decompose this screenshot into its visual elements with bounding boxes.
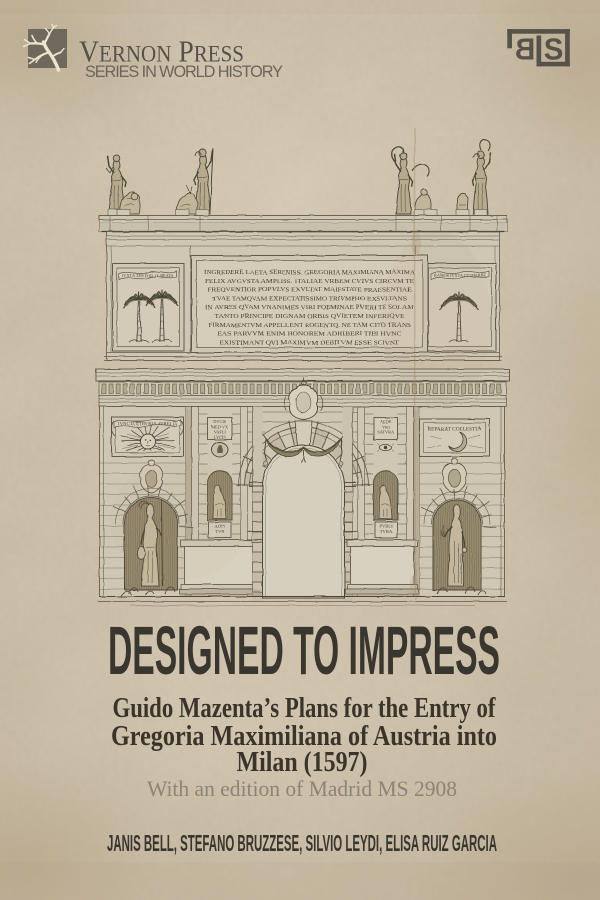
svg-text:IVNCTA ETRVRIA AVRELIA: IVNCTA ETRVRIA AVRELIA bbox=[118, 421, 179, 426]
svg-text:JANIS BELL, STEFANO BRUZZESE,: JANIS BELL, STEFANO BRUZZESE, SILVIO LEY… bbox=[107, 830, 497, 856]
svg-text:FREQVENTIOR POPVLVS EXVLTAT MA: FREQVENTIOR POPVLVS EXVLTAT MAIESTATE PR… bbox=[208, 287, 412, 294]
svg-text:With an edition of Madrid MS 2: With an edition of Madrid MS 2908 bbox=[147, 776, 457, 801]
svg-text:TVRA: TVRA bbox=[380, 529, 393, 534]
svg-text:EAS PARVVM ENIM HONOREM ADHIBE: EAS PARVVM ENIM HONOREM ADHIBERI TIBI HV… bbox=[218, 331, 403, 338]
svg-text:INGREDERE LAETA SERENISS. GREG: INGREDERE LAETA SERENISS. GREGORIA MAXIM… bbox=[204, 269, 415, 276]
svg-text:LVCIS: LVCIS bbox=[214, 435, 227, 440]
svg-text:Milan (1597): Milan (1597) bbox=[237, 746, 368, 778]
svg-text:IVXTA TER FOELIX BEATA: IVXTA TER FOELIX BEATA bbox=[122, 273, 175, 278]
svg-text:REPARAT COELESTIA: REPARAT COELESTIA bbox=[428, 428, 482, 433]
svg-text:B: B bbox=[515, 32, 535, 66]
svg-text:SATVRA: SATVRA bbox=[377, 430, 395, 435]
svg-text:FIRMAMENTVM APPELLENT ROGENTQ.: FIRMAMENTVM APPELLENT ROGENTQ. NE TAM CI… bbox=[209, 322, 411, 329]
svg-text:FELIX AVGVSTA AMPLISS. ITALIAE: FELIX AVGVSTA AMPLISS. ITALIAE VRBEM CVI… bbox=[205, 278, 414, 285]
svg-text:S: S bbox=[544, 32, 564, 66]
svg-text:PVBLI: PVBLI bbox=[379, 524, 393, 529]
svg-text:SERIES IN WORLD HISTORY: SERIES IN WORLD HISTORY bbox=[85, 63, 283, 81]
svg-text:TANTO PRINCIPE DIGNAM ORBIS QV: TANTO PRINCIPE DIGNAM ORBIS QVIETEM INFE… bbox=[215, 313, 405, 320]
svg-text:TVAE TAMQVAM EXPECTATISSIMO TR: TVAE TAMQVAM EXPECTATISSIMO TRIVMPHO EXS… bbox=[213, 295, 407, 302]
svg-text:DESIGNED TO IMPRESS: DESIGNED TO IMPRESS bbox=[108, 612, 500, 689]
svg-text:EXISTIMANT QVI MAXIMVM DEBITVM: EXISTIMANT QVI MAXIMVM DEBITVM ESSE SCIV… bbox=[220, 339, 400, 346]
